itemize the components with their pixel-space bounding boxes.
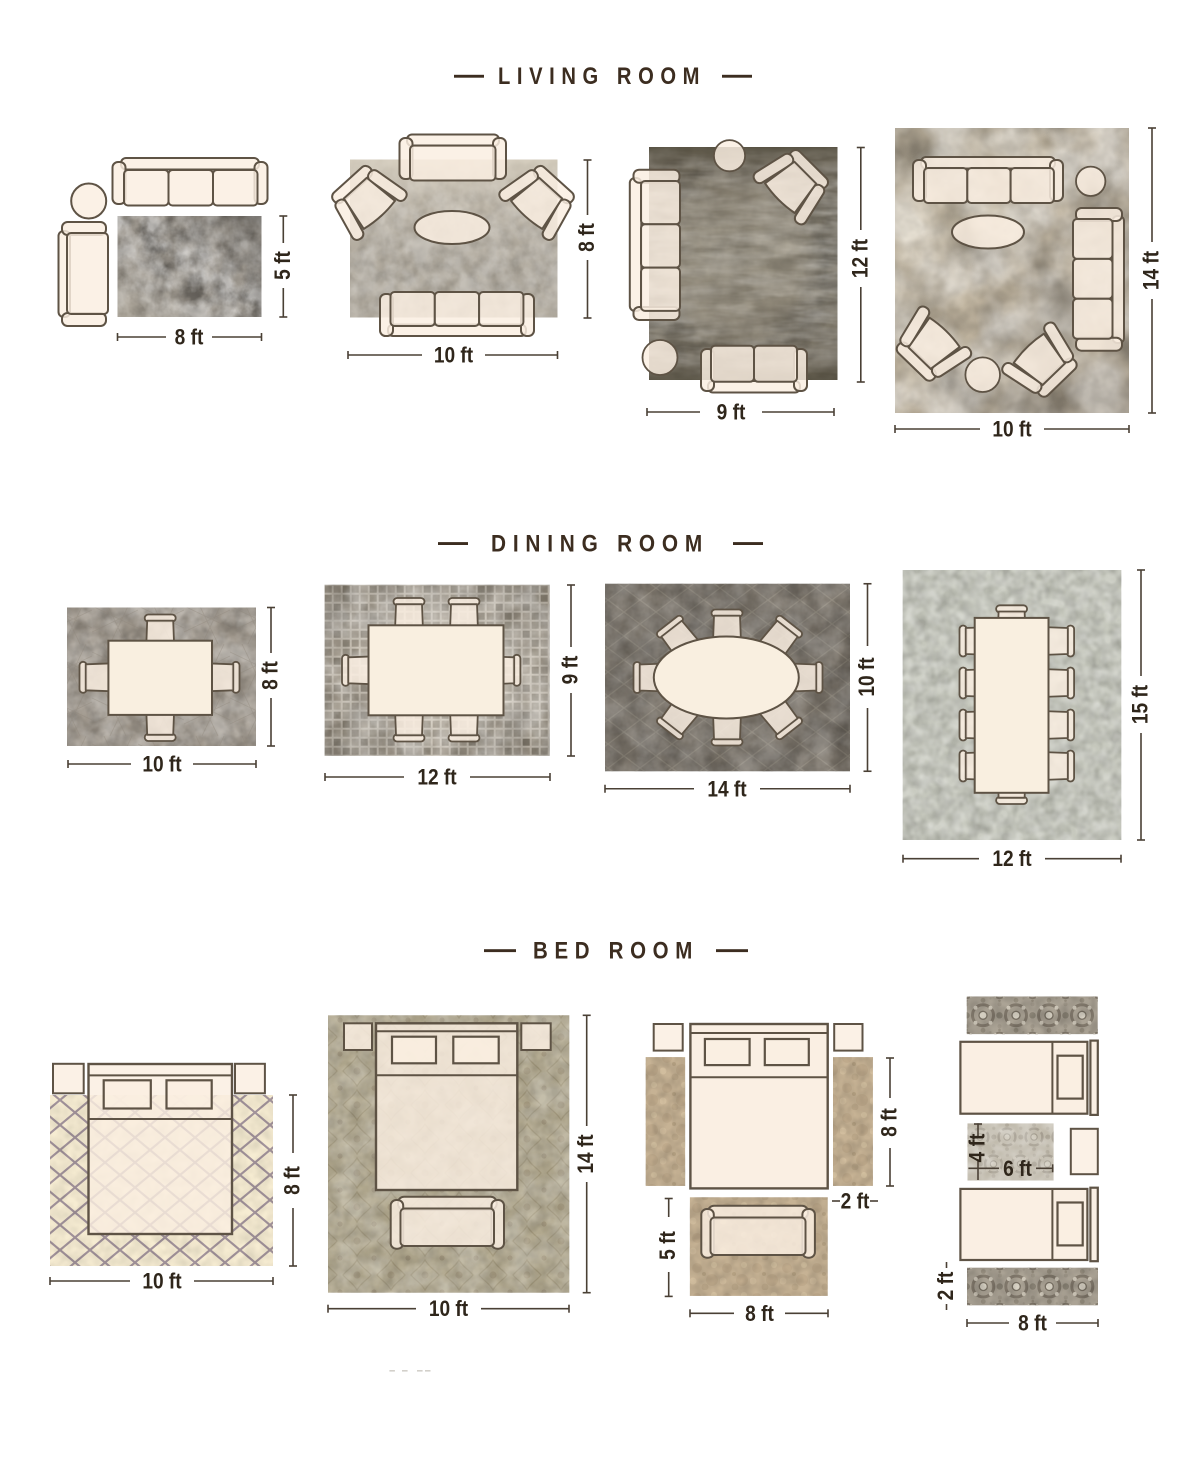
- svg-text:8 ft: 8 ft: [280, 1166, 305, 1195]
- svg-text:6 ft: 6 ft: [1003, 1156, 1032, 1181]
- svg-text:4 ft: 4 ft: [965, 1134, 990, 1163]
- svg-text:2 ft: 2 ft: [934, 1272, 959, 1301]
- svg-text:8 ft: 8 ft: [258, 661, 283, 690]
- svg-text:8 ft: 8 ft: [575, 223, 600, 252]
- svg-text:8 ft: 8 ft: [877, 1108, 902, 1137]
- svg-text:BED ROOM: BED ROOM: [533, 937, 699, 964]
- svg-text:14 ft: 14 ft: [574, 1134, 599, 1173]
- svg-text:9 ft: 9 ft: [558, 656, 583, 685]
- svg-text:LIVING ROOM: LIVING ROOM: [498, 63, 706, 90]
- svg-text:10 ft: 10 ft: [434, 343, 473, 368]
- svg-text:5 ft: 5 ft: [656, 1231, 681, 1260]
- svg-text:12 ft: 12 ft: [417, 765, 456, 790]
- svg-text:10 ft: 10 ft: [855, 657, 880, 696]
- svg-text:9 ft: 9 ft: [717, 400, 746, 425]
- svg-text:10 ft: 10 ft: [142, 752, 181, 777]
- svg-text:8 ft: 8 ft: [1018, 1311, 1047, 1336]
- svg-text:10 ft: 10 ft: [992, 417, 1031, 442]
- svg-text:12 ft: 12 ft: [848, 239, 873, 278]
- svg-text:DINING ROOM: DINING ROOM: [491, 530, 709, 557]
- svg-text:12 ft: 12 ft: [992, 847, 1031, 872]
- svg-text:5 ft: 5 ft: [271, 251, 296, 280]
- svg-text:15 ft: 15 ft: [1128, 685, 1153, 724]
- svg-text:10 ft: 10 ft: [429, 1297, 468, 1322]
- svg-text:10 ft: 10 ft: [142, 1269, 181, 1294]
- svg-text:8 ft: 8 ft: [745, 1301, 774, 1326]
- svg-text:2 ft: 2 ft: [841, 1189, 870, 1214]
- svg-text:14 ft: 14 ft: [1139, 251, 1164, 290]
- svg-text:8 ft: 8 ft: [175, 325, 204, 350]
- svg-text:14 ft: 14 ft: [707, 777, 746, 802]
